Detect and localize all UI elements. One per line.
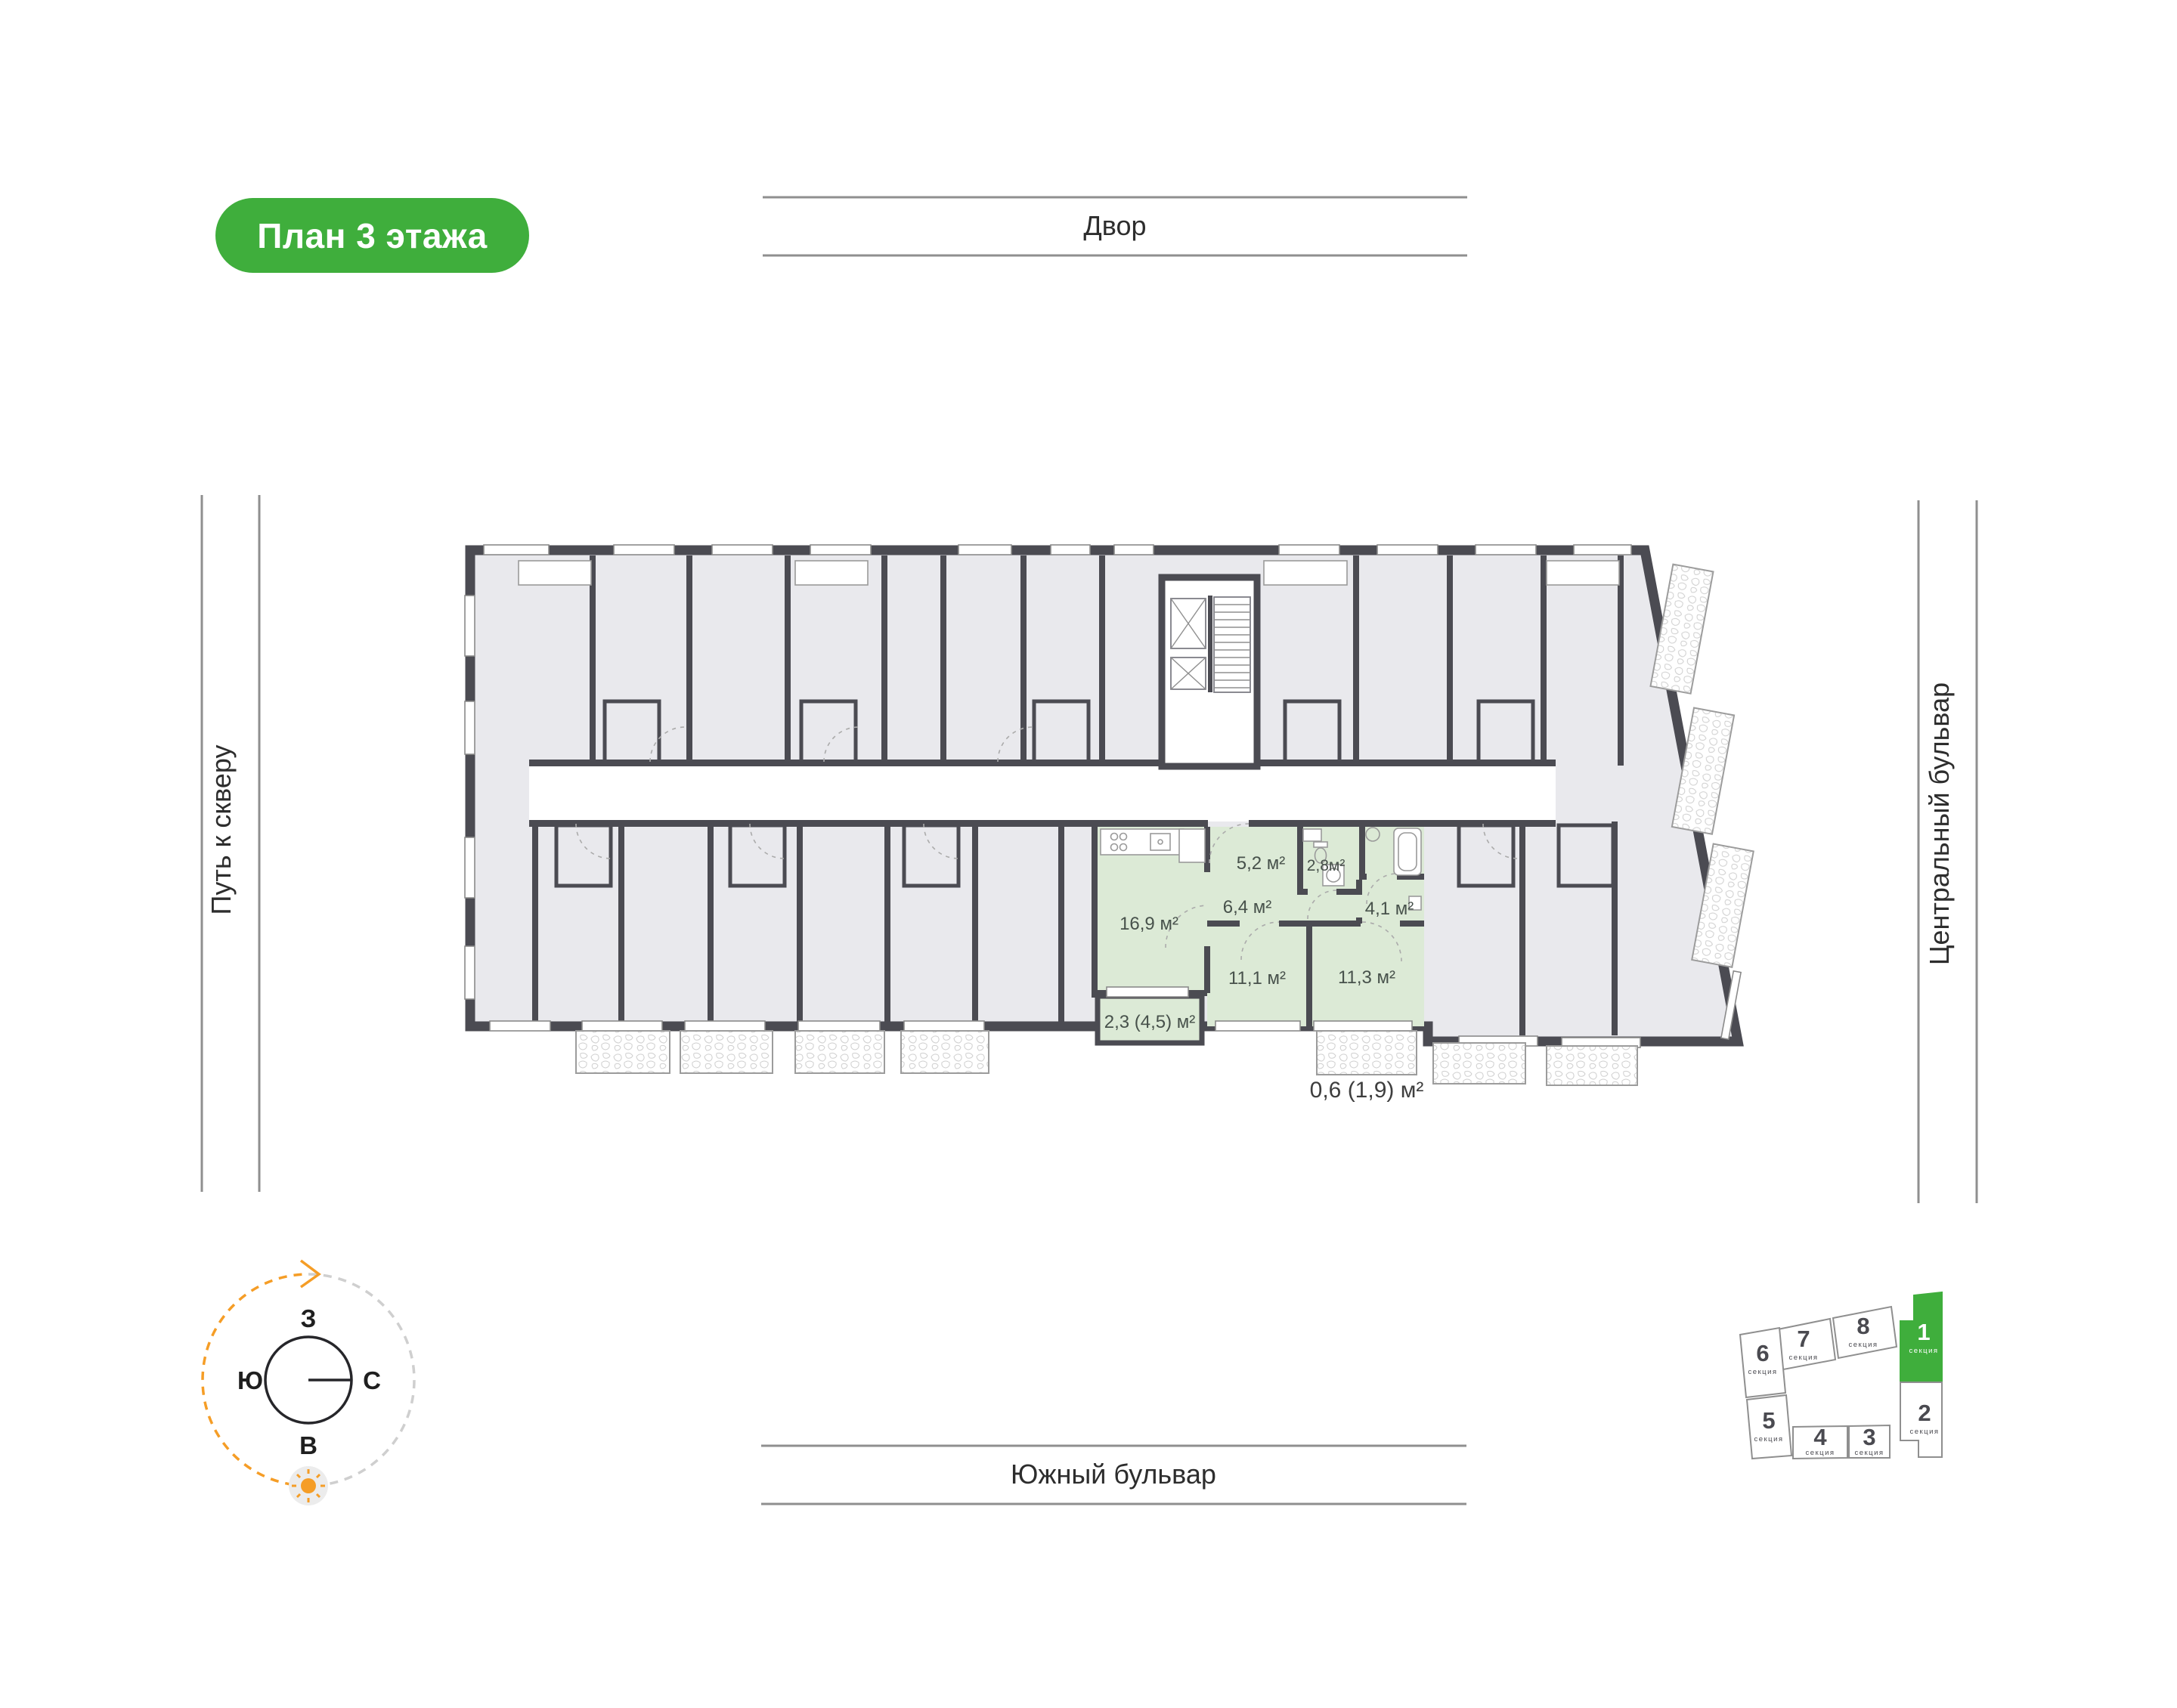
- section-caption: секция: [1854, 1449, 1884, 1457]
- apartment-windows: [1215, 1021, 1412, 1031]
- kitchen-sink-icon: [1150, 834, 1170, 850]
- corridor: [529, 766, 1556, 822]
- room-area-label: 11,1 м²: [1228, 968, 1286, 989]
- section-number: 4: [1813, 1424, 1827, 1450]
- apartment-highlight[interactable]: 16,9 м² 5,2 м² 2,8м² 6,4 м² 4,1 м² 11,1 …: [1092, 824, 1424, 1075]
- compass-east-label: В: [299, 1431, 317, 1459]
- room-area-label: 5,2 м²: [1237, 853, 1286, 874]
- room-area-label: 2,8м²: [1307, 857, 1346, 874]
- compass: З Ю С В: [203, 1261, 414, 1505]
- compass-south-label: Ю: [237, 1366, 263, 1394]
- street-right: Центральный бульвар: [1918, 500, 1977, 1203]
- street-top-label: Двор: [1083, 210, 1146, 241]
- street-right-label: Центральный бульвар: [1924, 682, 1955, 965]
- street-bottom-label: Южный бульвар: [1011, 1459, 1216, 1490]
- building-sections-map: 6 секция 7 секция 8 секция 5 секция 4 се…: [1740, 1292, 1942, 1459]
- section-number: 3: [1863, 1424, 1875, 1450]
- section-caption: секция: [1909, 1428, 1939, 1436]
- staircase-icon: [1214, 597, 1250, 692]
- elevator-core: [1162, 577, 1257, 766]
- room-area-label: 6,4 м²: [1223, 897, 1272, 917]
- section-number-active: 1: [1917, 1319, 1930, 1345]
- elevator-shaft-icon: [1171, 599, 1206, 689]
- section-number: 5: [1762, 1407, 1775, 1434]
- section-caption: секция: [1748, 1368, 1777, 1376]
- section-number: 7: [1797, 1326, 1810, 1352]
- room-area-label: 2,3 (4,5) м²: [1104, 1012, 1196, 1032]
- compass-north-label: С: [363, 1366, 381, 1394]
- section-caption: секция: [1754, 1435, 1783, 1443]
- street-bottom: Южный бульвар: [761, 1446, 1466, 1504]
- section-caption: секция: [1909, 1347, 1938, 1355]
- section-caption: секция: [1788, 1354, 1818, 1362]
- floor-plan-svg: Двор Южный бульвар Путь к скверу Централ…: [0, 0, 2177, 1708]
- sun-icon: [289, 1466, 328, 1505]
- section-number: 6: [1756, 1340, 1769, 1366]
- cabinet-icon: [1179, 829, 1205, 862]
- section-number: 2: [1918, 1400, 1931, 1426]
- section-caption: секция: [1848, 1341, 1878, 1349]
- section-caption: секция: [1805, 1449, 1835, 1457]
- street-top: Двор: [763, 197, 1467, 255]
- compass-west-label: З: [301, 1304, 317, 1332]
- room-area-label: 4,1 м²: [1365, 899, 1414, 919]
- section-number: 8: [1856, 1313, 1869, 1339]
- room-area-label: 16,9 м²: [1119, 914, 1178, 934]
- apartment-balcony: [1317, 1031, 1417, 1075]
- street-left: Путь к скверу: [202, 495, 259, 1192]
- balcony-area-label: 0,6 (1,9) м²: [1310, 1078, 1424, 1103]
- street-left-label: Путь к скверу: [206, 745, 237, 915]
- room-area-label: 11,3 м²: [1338, 967, 1395, 988]
